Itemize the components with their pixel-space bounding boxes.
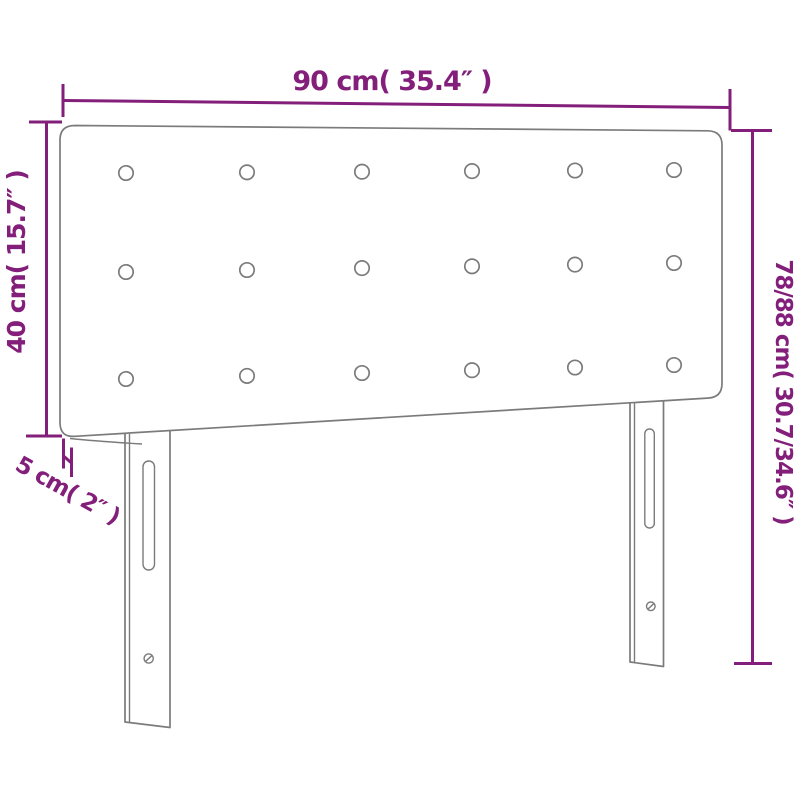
left-leg	[125, 431, 170, 728]
width-dimension-label: 90 cm( 35.4″ )	[292, 66, 491, 97]
tufting-button	[568, 360, 582, 374]
right-leg-slot	[645, 429, 655, 528]
tufting-button	[240, 165, 254, 179]
tufting-button	[667, 163, 681, 177]
width-dimension: 90 cm( 35.4″ )	[63, 66, 730, 131]
tufting-button	[355, 366, 369, 380]
height-left-dimension-label: 40 cm( 15.7″ )	[2, 170, 31, 353]
height-left-dimension: 40 cm( 15.7″ )	[2, 122, 62, 437]
tufting-button	[465, 363, 479, 377]
tufting-button	[568, 257, 582, 271]
tufting-button	[355, 165, 369, 179]
tufting-button	[667, 256, 681, 270]
left-leg-screw-slot	[146, 656, 152, 662]
tufting-button	[119, 166, 133, 180]
width-dimension-line	[63, 101, 730, 108]
tufting-button	[240, 369, 254, 383]
headboard	[60, 126, 722, 445]
tufting-buttons	[119, 163, 681, 386]
thickness-dimension-label: 5 cm( 2″ )	[11, 452, 124, 530]
right-leg-screw-slot	[648, 604, 654, 609]
height-right-dimension-label: 78/88 cm( 30.7/34.6″ )	[770, 259, 796, 524]
diagram-canvas: 90 cm( 35.4″ ) 40 cm( 15.7″ ) 78/88 cm( …	[0, 0, 800, 800]
headboard-outline	[60, 126, 722, 437]
tufting-button	[465, 164, 479, 178]
left-leg-slot	[143, 461, 155, 570]
tufting-button	[355, 261, 369, 275]
tufting-button	[119, 265, 133, 279]
right-leg	[630, 401, 664, 667]
headboard-bottom-edge-line	[70, 439, 142, 445]
tufting-button	[568, 163, 582, 177]
thickness-dimension: 5 cm( 2″ )	[11, 439, 124, 531]
height-right-dimension: 78/88 cm( 30.7/34.6″ )	[731, 131, 796, 664]
tufting-button	[667, 358, 681, 372]
tufting-button	[119, 372, 133, 386]
headboard-dimension-diagram: 90 cm( 35.4″ ) 40 cm( 15.7″ ) 78/88 cm( …	[0, 0, 800, 800]
left-leg-outline	[125, 431, 170, 728]
tufting-button	[465, 259, 479, 273]
tufting-button	[240, 263, 254, 277]
